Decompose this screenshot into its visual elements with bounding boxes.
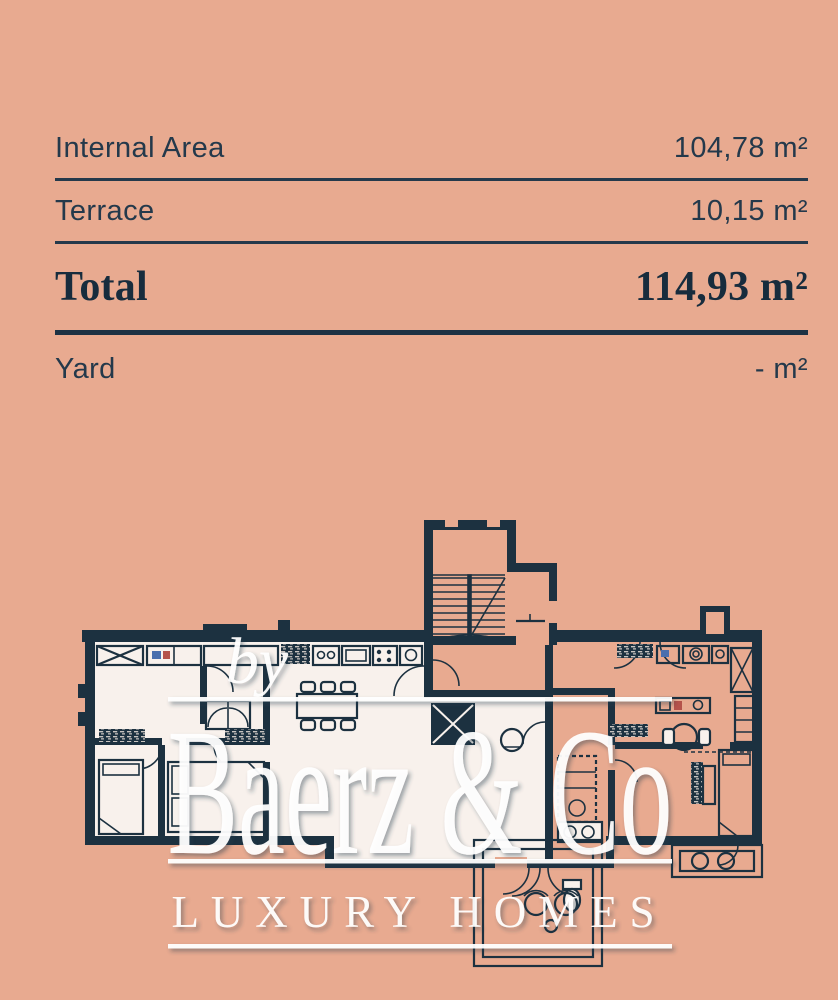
wall-openings xyxy=(445,520,724,634)
balcony-chair xyxy=(718,853,734,869)
desk xyxy=(703,766,715,804)
shelf-column xyxy=(735,696,754,742)
dimension-chip xyxy=(99,729,145,742)
watermark-tagline: LUXURY HOMES xyxy=(172,887,669,937)
watermark-rule-bottom xyxy=(168,944,672,949)
chair xyxy=(699,729,710,745)
dimension-chip xyxy=(691,762,703,804)
bed xyxy=(719,750,754,836)
listing-sheet: Internal Area 104,78 m² Terrace 10,15 m²… xyxy=(0,0,838,1000)
balcony xyxy=(672,845,762,877)
stairwell xyxy=(433,575,545,641)
balcony-chair xyxy=(692,853,708,869)
floor-plan: by Baerz & Co LUXURY HOMES xyxy=(0,0,838,1000)
dimension-chip xyxy=(617,644,653,658)
pillow xyxy=(723,754,750,765)
watermark-by: by xyxy=(226,625,289,698)
watermark-rule-middle xyxy=(168,859,672,864)
bedroom-right xyxy=(703,750,754,836)
